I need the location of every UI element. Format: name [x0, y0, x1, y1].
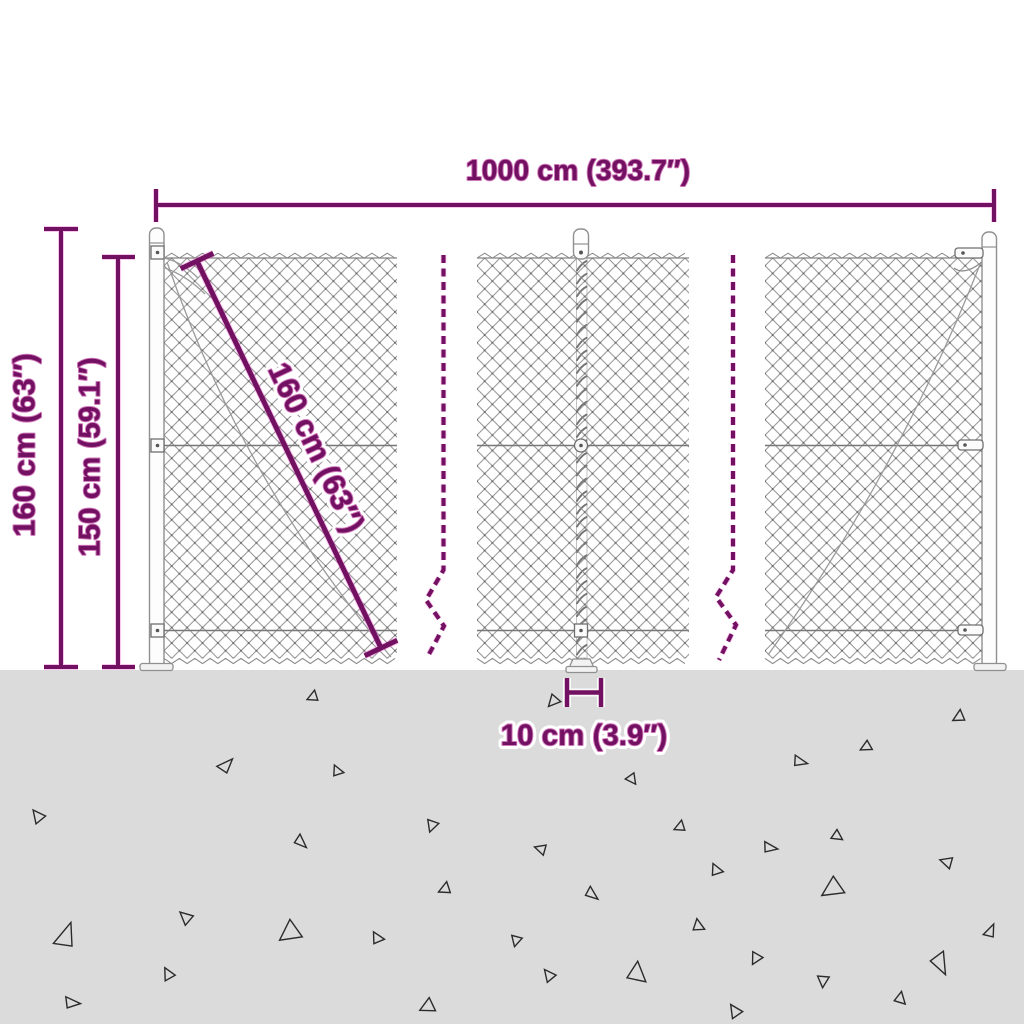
- svg-text:160 cm (63″): 160 cm (63″): [7, 353, 42, 537]
- svg-text:150 cm (59.1″): 150 cm (59.1″): [74, 357, 107, 556]
- svg-text:10 cm (3.9″): 10 cm (3.9″): [501, 719, 668, 752]
- svg-text:1000 cm (393.7″): 1000 cm (393.7″): [466, 155, 690, 187]
